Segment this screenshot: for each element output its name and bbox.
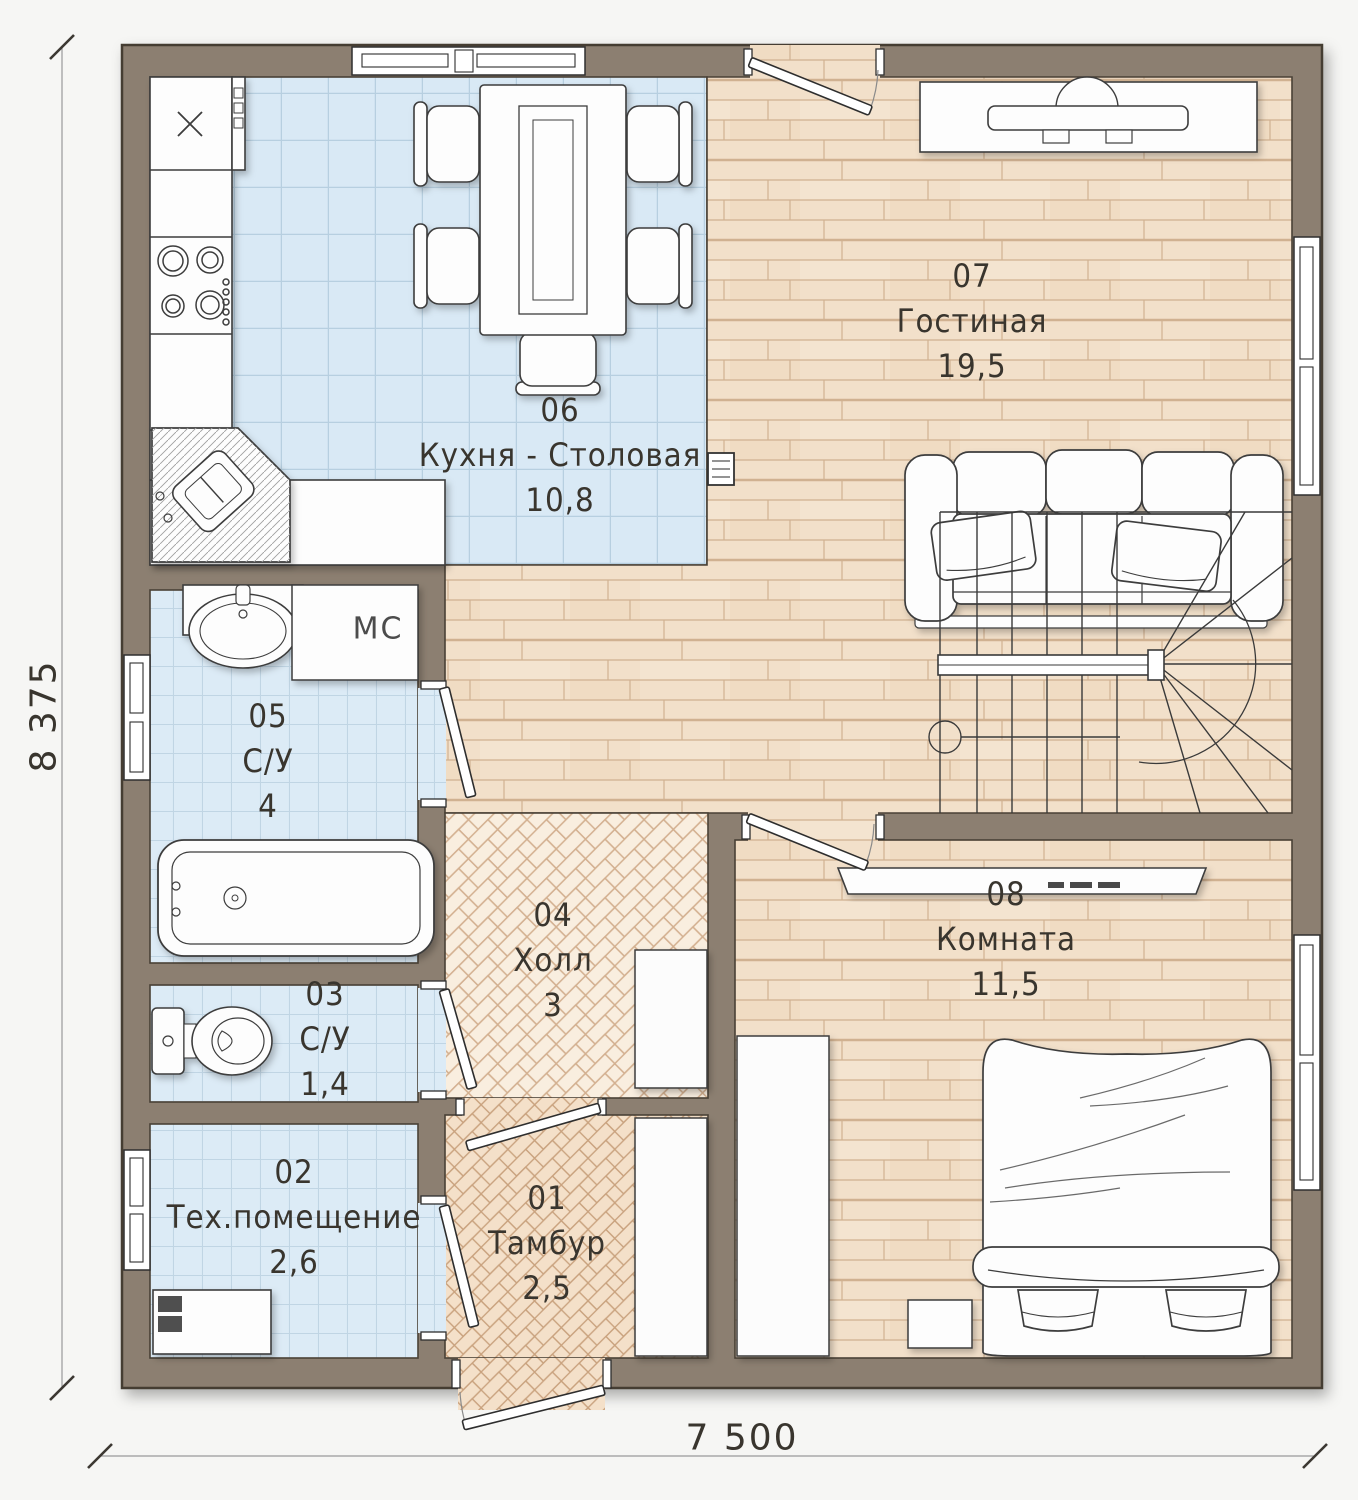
dining-chair xyxy=(414,224,479,308)
window-bathroom-left xyxy=(124,655,150,780)
dimension-line-left xyxy=(50,35,74,1400)
floor-plan-drawing xyxy=(0,0,1358,1500)
floor-plan-canvas: 06 Кухня - Столовая 10,8 07 Гостиная 19,… xyxy=(0,0,1358,1500)
tv-panel-bedroom xyxy=(838,868,1206,894)
toilet xyxy=(152,1007,272,1075)
dining-table xyxy=(480,85,626,335)
nightstand xyxy=(908,1300,972,1348)
window-tech-left xyxy=(124,1150,150,1270)
floor-vent-icon xyxy=(708,453,734,485)
window-bedroom-right xyxy=(1294,935,1320,1190)
sofa xyxy=(905,450,1283,628)
dining-chair xyxy=(414,102,479,186)
window-living-right xyxy=(1294,237,1320,495)
hall-closet xyxy=(635,950,707,1088)
dining-chair xyxy=(516,332,600,395)
boiler-unit xyxy=(153,1290,271,1354)
tambour-closet xyxy=(635,1118,707,1356)
window-kitchen-top xyxy=(352,47,585,75)
bathtub xyxy=(158,840,434,956)
tv-stand xyxy=(920,77,1257,152)
dimension-line-bottom xyxy=(88,1444,1327,1468)
bed-bench xyxy=(1018,1290,1098,1331)
storage-box-mc xyxy=(292,585,418,680)
bedroom-wardrobe xyxy=(737,1036,829,1356)
dining-chair xyxy=(627,102,692,186)
bed-bench xyxy=(1166,1290,1246,1331)
dining-chair xyxy=(627,224,692,308)
